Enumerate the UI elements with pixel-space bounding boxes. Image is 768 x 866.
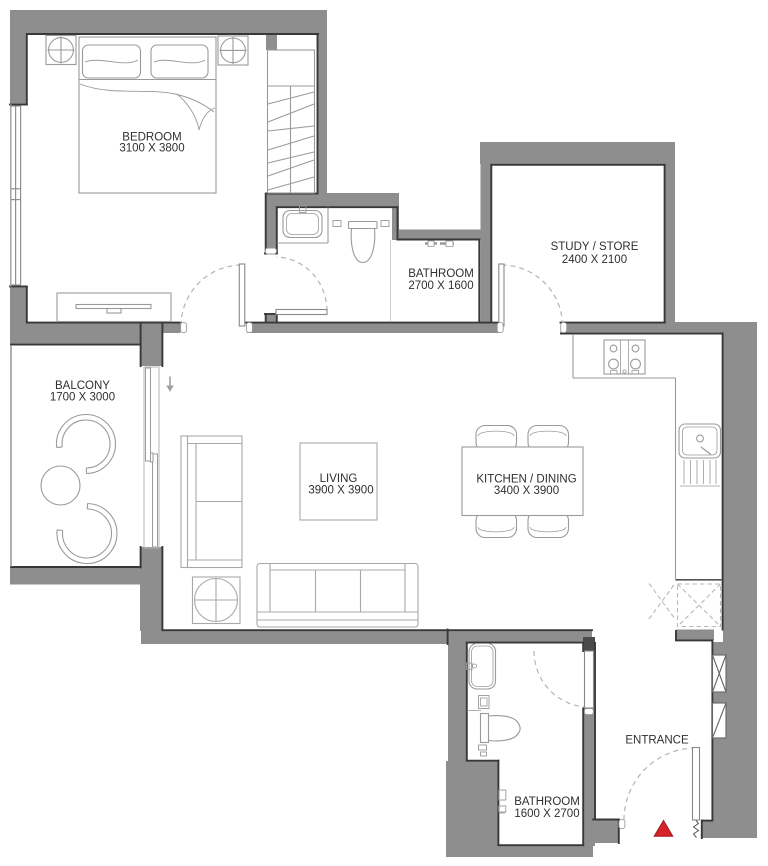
svg-text:2700 X 1600: 2700 X 1600: [408, 280, 473, 292]
svg-text:STUDY / STORE: STUDY / STORE: [551, 241, 639, 253]
svg-text:3100 X 3800: 3100 X 3800: [119, 143, 184, 155]
svg-text:KITCHEN / DINING: KITCHEN / DINING: [476, 474, 576, 486]
svg-text:BATHROOM: BATHROOM: [408, 268, 474, 280]
svg-text:BALCONY: BALCONY: [55, 380, 110, 392]
svg-text:3400 X 3900: 3400 X 3900: [494, 485, 559, 497]
svg-text:BATHROOM: BATHROOM: [514, 796, 580, 808]
svg-text:BEDROOM: BEDROOM: [122, 131, 181, 143]
svg-text:3900 X 3900: 3900 X 3900: [308, 484, 373, 496]
svg-text:2400 X 2100: 2400 X 2100: [562, 254, 627, 266]
svg-text:ENTRANCE: ENTRANCE: [625, 735, 689, 747]
svg-text:1600 X 2700: 1600 X 2700: [514, 808, 579, 820]
svg-text:LIVING: LIVING: [320, 473, 358, 485]
svg-text:1700 X 3000: 1700 X 3000: [50, 391, 115, 403]
